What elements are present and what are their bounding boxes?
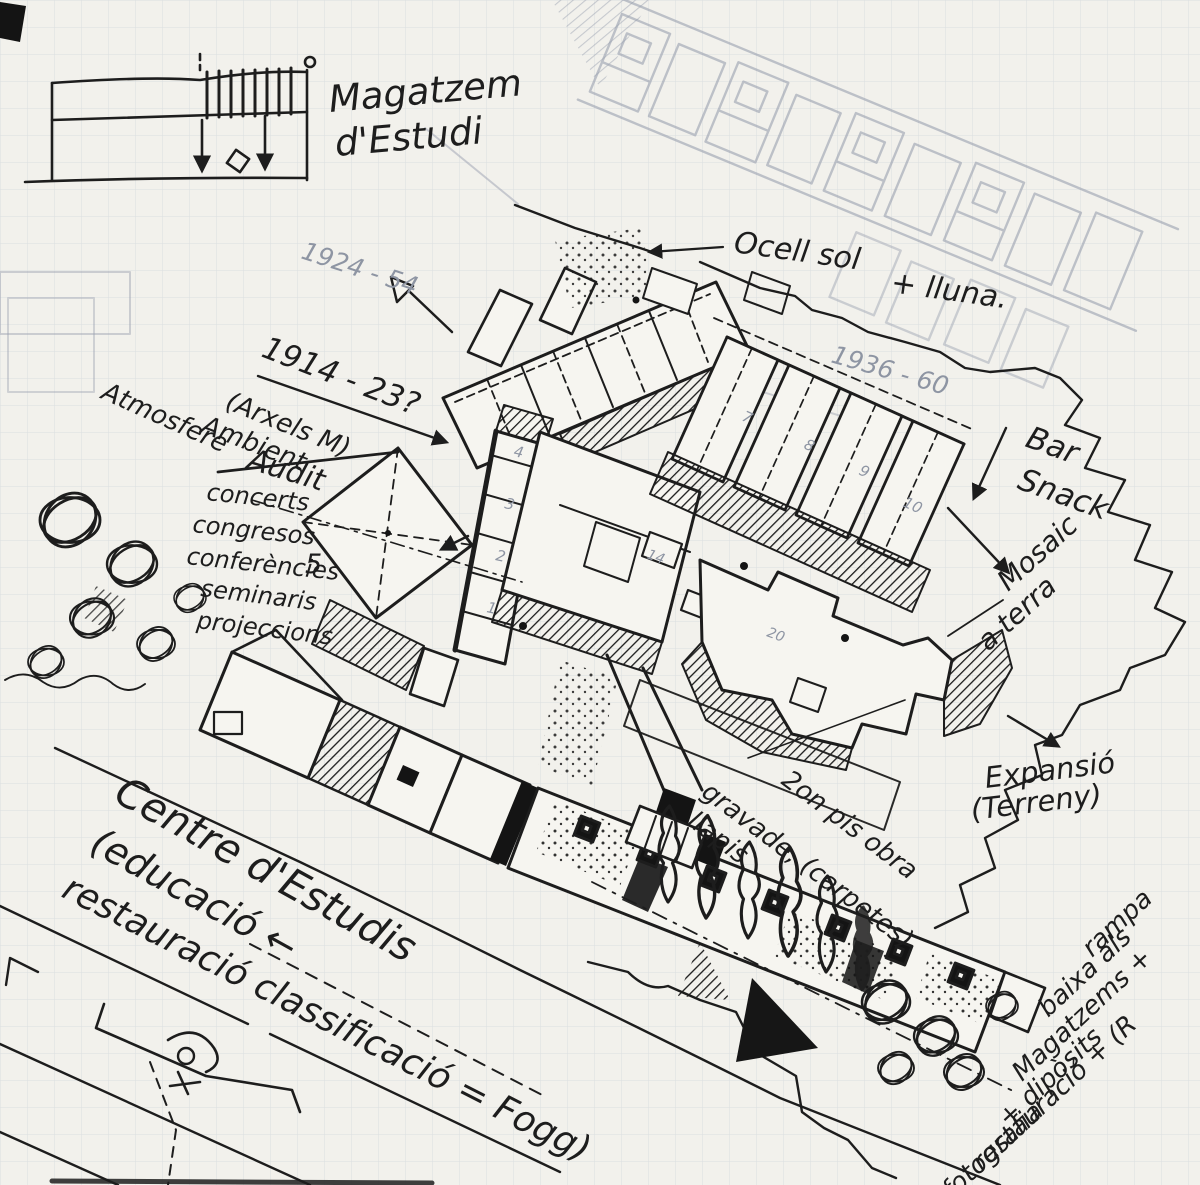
scan-bottom-edge bbox=[52, 1181, 432, 1183]
auditorium-number: 5 bbox=[305, 549, 322, 580]
plan-dotted-plaza bbox=[555, 228, 655, 308]
scanned-sketch-page: Magatzem d'Estudi 1924 - 54 1914 - 23? (… bbox=[0, 0, 1200, 1185]
street-building-notch bbox=[214, 712, 242, 734]
sketch-canvas: Magatzem d'Estudi 1924 - 54 1914 - 23? (… bbox=[0, 0, 1200, 1185]
plan-stair-dot bbox=[633, 297, 640, 304]
